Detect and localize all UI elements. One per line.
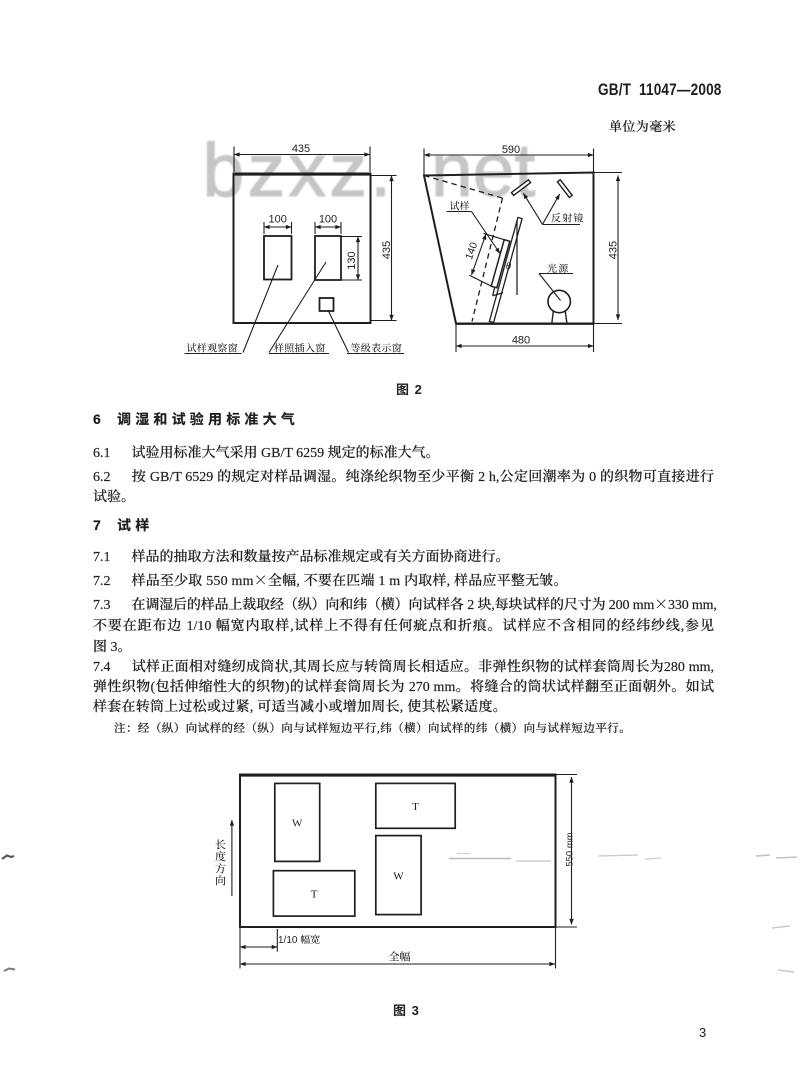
svg-text:480: 480 — [512, 335, 530, 347]
svg-text:光源: 光源 — [547, 260, 569, 275]
svg-text:1/10 幅宽: 1/10 幅宽 — [278, 931, 320, 946]
svg-text:W: W — [292, 818, 303, 830]
svg-text:W: W — [393, 871, 404, 883]
svg-text:全幅: 全幅 — [389, 949, 411, 965]
svg-text:130: 130 — [346, 251, 358, 269]
svg-text:435: 435 — [381, 241, 393, 259]
svg-text:等级表示窗: 等级表示窗 — [351, 340, 403, 355]
svg-text:向: 向 — [215, 873, 226, 889]
svg-text:435: 435 — [608, 241, 620, 259]
svg-text:反射镜: 反射镜 — [551, 210, 585, 225]
svg-text:100: 100 — [269, 214, 287, 226]
svg-text:100: 100 — [319, 214, 337, 226]
svg-text:T: T — [311, 889, 318, 901]
svg-text:θ: θ — [506, 261, 512, 273]
svg-text:435: 435 — [292, 143, 310, 155]
svg-text:T: T — [412, 801, 419, 813]
svg-text:550 mm: 550 mm — [565, 832, 576, 866]
svg-text:样照插入窗: 样照插入窗 — [274, 340, 326, 355]
svg-text:试样观察窗: 试样观察窗 — [187, 340, 239, 355]
svg-text:试样: 试样 — [450, 198, 470, 213]
svg-text:590: 590 — [502, 144, 520, 156]
